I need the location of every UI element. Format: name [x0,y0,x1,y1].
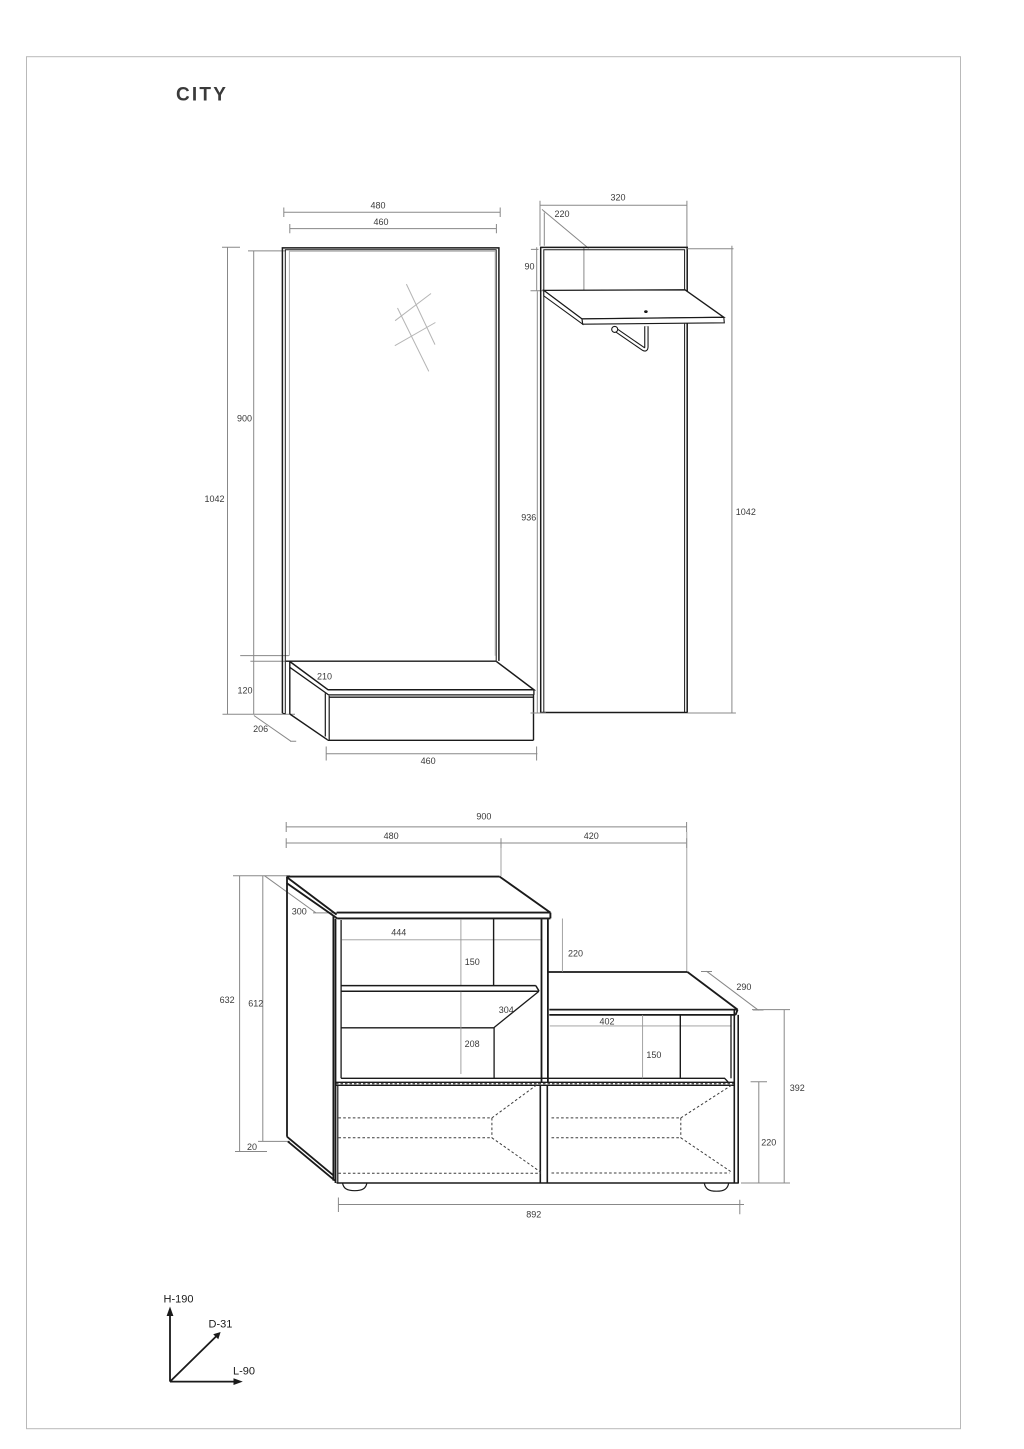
svg-text:392: 392 [790,1083,805,1093]
svg-text:632: 632 [220,995,235,1005]
svg-text:900: 900 [476,812,491,822]
svg-text:420: 420 [584,831,599,841]
svg-text:210: 210 [317,671,332,681]
svg-text:1042: 1042 [736,507,756,517]
svg-text:120: 120 [238,686,253,696]
svg-text:220: 220 [554,209,569,219]
svg-text:936: 936 [521,512,536,522]
svg-text:220: 220 [568,948,583,958]
svg-text:612: 612 [248,999,263,1009]
svg-text:20: 20 [247,1142,257,1152]
svg-text:90: 90 [525,262,535,272]
svg-text:L-90: L-90 [233,1366,255,1378]
svg-text:460: 460 [373,217,388,227]
svg-text:892: 892 [526,1210,541,1220]
svg-text:300: 300 [292,906,307,916]
svg-text:900: 900 [237,413,252,423]
svg-text:150: 150 [646,1050,661,1060]
svg-text:304: 304 [499,1005,514,1015]
svg-text:1042: 1042 [205,494,225,504]
svg-text:208: 208 [465,1039,480,1049]
svg-text:220: 220 [761,1137,776,1147]
svg-text:D-31: D-31 [209,1319,233,1331]
svg-text:480: 480 [384,831,399,841]
svg-text:320: 320 [610,192,625,202]
svg-text:444: 444 [391,927,406,937]
svg-text:150: 150 [465,957,480,967]
svg-text:460: 460 [421,756,436,766]
svg-text:402: 402 [599,1017,614,1027]
svg-text:480: 480 [370,201,385,211]
svg-text:H-190: H-190 [164,1294,194,1306]
svg-text:206: 206 [253,724,268,734]
svg-text:CITY: CITY [176,85,228,106]
svg-text:290: 290 [736,982,751,992]
